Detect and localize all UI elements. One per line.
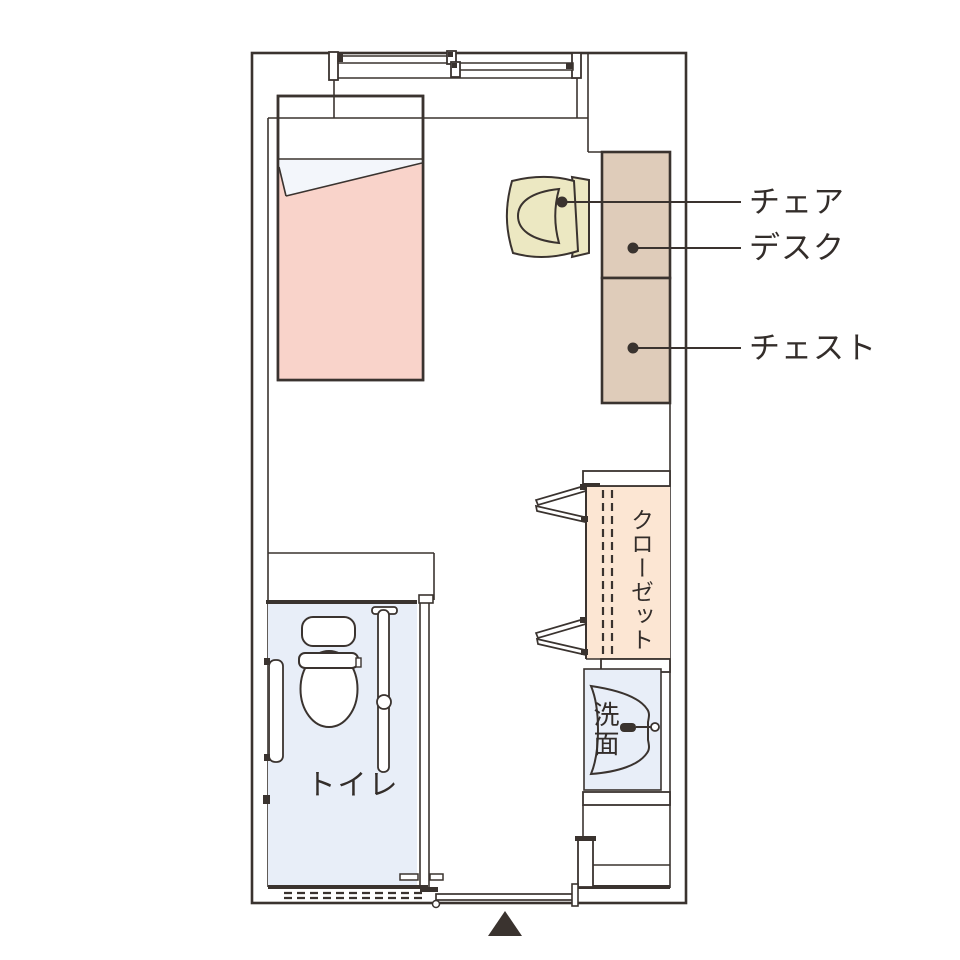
toilet-seat-hinge xyxy=(299,653,358,668)
chest xyxy=(602,278,670,403)
door-handle xyxy=(400,874,418,880)
closet-label: クローゼット xyxy=(629,508,652,652)
toilet-fixture xyxy=(299,617,361,727)
desk-callout-dot xyxy=(628,243,639,254)
entrance-door-jamb xyxy=(572,884,578,906)
wall-handrail xyxy=(269,660,283,762)
entrance-direction-marker xyxy=(488,911,522,936)
vertical-grab-bar xyxy=(378,610,389,772)
window-sash-left xyxy=(338,56,455,63)
entrance-door-panel xyxy=(436,894,576,900)
faucet-handle xyxy=(620,723,636,732)
washbasin-label: 洗面 xyxy=(592,701,618,759)
chair-callout-dot xyxy=(557,197,568,208)
entry-nook xyxy=(575,792,670,887)
chair-label: チェア xyxy=(749,186,845,217)
desk-label: デスク xyxy=(749,232,845,263)
door-post xyxy=(578,839,593,887)
floor-plan: チェア デスク チェスト クローゼット 洗面 トイレ xyxy=(0,0,960,960)
closet-folding-doors xyxy=(536,484,588,655)
entry-shelf xyxy=(583,792,670,805)
chest-callout-dot xyxy=(628,343,639,354)
toilet-label: トイレ xyxy=(306,772,399,801)
chair xyxy=(507,177,589,257)
sliding-window xyxy=(329,51,581,118)
floor-plan-drawing xyxy=(0,0,960,960)
window-jamb-left xyxy=(329,52,338,80)
toilet-tank xyxy=(302,617,355,646)
faucet-spout xyxy=(651,723,659,731)
desk xyxy=(602,152,670,278)
bed xyxy=(278,96,423,380)
toilet-room xyxy=(263,553,443,889)
chest-label: チェスト xyxy=(749,332,877,363)
window-sash-right xyxy=(455,63,573,70)
